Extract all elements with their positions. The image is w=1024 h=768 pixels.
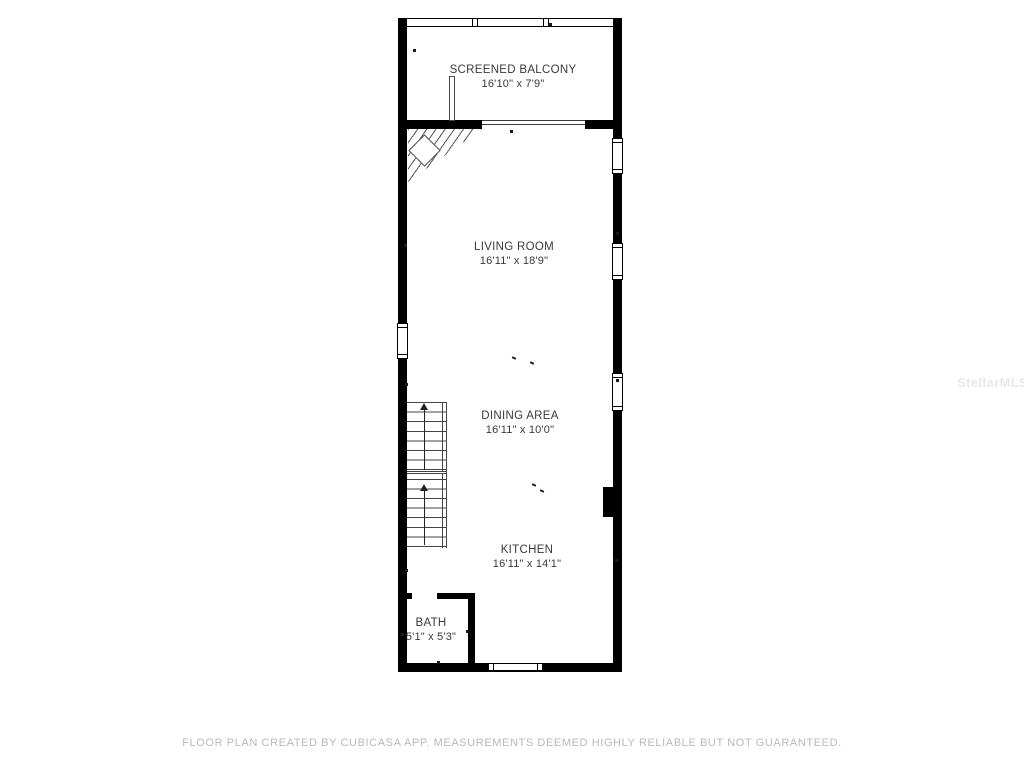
dimension-tick bbox=[549, 23, 552, 26]
room-dimensions: 16'11" x 18'9" bbox=[474, 254, 554, 268]
room-label-screened-balcony: SCREENED BALCONY 16'10" x 7'9" bbox=[450, 63, 577, 91]
wall-kitchen-protrusion bbox=[603, 487, 622, 517]
stair-landing bbox=[407, 471, 446, 474]
wall-right bbox=[613, 18, 622, 672]
sliding-door-opening bbox=[482, 120, 585, 125]
room-label-kitchen: KITCHEN 16'11" x 14'1" bbox=[493, 543, 561, 571]
dimension-tick bbox=[616, 379, 619, 382]
stair-direction-line bbox=[424, 409, 425, 470]
room-name: LIVING ROOM bbox=[474, 240, 554, 254]
window-mullion bbox=[543, 19, 544, 26]
dimension-tick bbox=[616, 232, 619, 235]
plan-mark bbox=[530, 361, 534, 365]
staircase bbox=[407, 402, 447, 548]
dimension-tick bbox=[404, 244, 407, 247]
plan-mark bbox=[512, 356, 516, 360]
room-label-bath: BATH 5'1" x 5'3" bbox=[406, 616, 456, 644]
room-dimensions: 16'10" x 7'9" bbox=[450, 77, 577, 91]
room-name: SCREENED BALCONY bbox=[450, 63, 577, 77]
dimension-tick bbox=[615, 559, 618, 562]
stair-direction-line bbox=[424, 490, 425, 545]
window-right-wall-2 bbox=[612, 243, 623, 280]
stair-rail bbox=[442, 402, 443, 548]
stair-up-arrow-icon bbox=[420, 484, 428, 491]
dimension-tick bbox=[401, 633, 404, 636]
stair-up-arrow-icon bbox=[420, 403, 428, 410]
wall-bath-top-left bbox=[398, 593, 412, 599]
dimension-tick bbox=[466, 630, 469, 633]
wall-balcony-divider-left bbox=[398, 120, 482, 129]
dimension-tick bbox=[413, 49, 416, 52]
room-label-dining-area: DINING AREA 16'11" x 10'0" bbox=[481, 409, 558, 437]
window-left-wall bbox=[397, 323, 408, 359]
dimension-tick bbox=[405, 569, 408, 572]
room-dimensions: 16'11" x 14'1" bbox=[493, 557, 561, 571]
wall-bath-right bbox=[468, 599, 475, 665]
wall-balcony-divider-right bbox=[585, 120, 622, 129]
dimension-tick bbox=[437, 661, 440, 664]
window-bottom-wall bbox=[488, 663, 543, 671]
room-dimensions: 16'11" x 10'0" bbox=[481, 423, 558, 437]
window-right-wall-1 bbox=[612, 138, 623, 174]
dimension-tick bbox=[405, 383, 408, 386]
room-dimensions: 5'1" x 5'3" bbox=[406, 630, 456, 644]
room-name: DINING AREA bbox=[481, 409, 558, 423]
room-name: KITCHEN bbox=[493, 543, 561, 557]
footer-disclaimer: FLOOR PLAN CREATED BY CUBICASA APP. MEAS… bbox=[0, 737, 1024, 749]
room-label-living-room: LIVING ROOM 16'11" x 18'9" bbox=[474, 240, 554, 268]
balcony-window-band bbox=[407, 18, 613, 27]
floor-plan-page: SCREENED BALCONY 16'10" x 7'9" LIVING RO… bbox=[0, 0, 1024, 768]
dimension-tick bbox=[510, 130, 513, 133]
plan-mark bbox=[540, 489, 544, 493]
stellar-mls-watermark: StellarMLS bbox=[957, 375, 1024, 390]
window-mullion bbox=[477, 19, 478, 26]
plan-mark bbox=[532, 483, 536, 487]
window-mullion bbox=[472, 19, 473, 26]
room-name: BATH bbox=[406, 616, 456, 630]
